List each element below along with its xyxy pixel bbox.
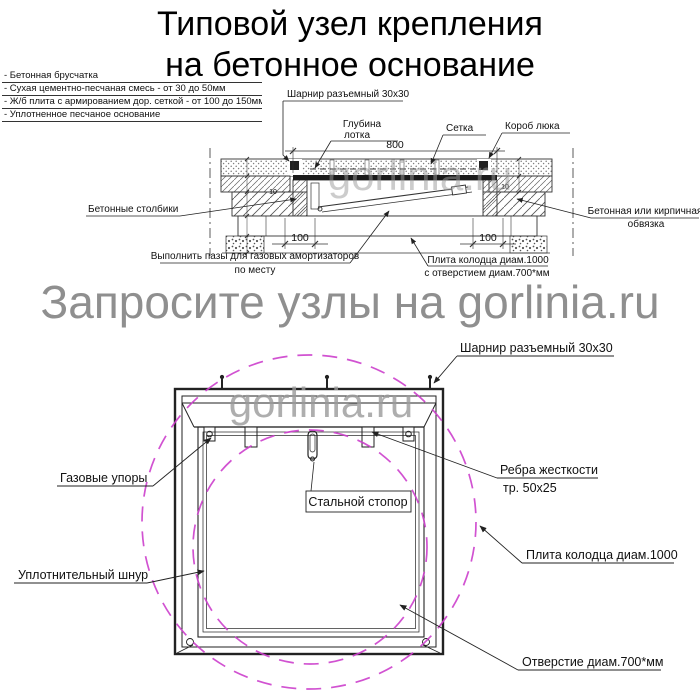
label-strapping-2: обвязка: [628, 218, 665, 230]
label-tray-depth-1: Глубина: [343, 118, 382, 130]
label-mesh: Сетка: [446, 123, 474, 134]
cement-layer-left: [221, 176, 290, 192]
label-grooves-1: Выполнить пазы для газовых амортизаторов: [151, 251, 360, 262]
label-hole: Отверстие диам.700*мм: [522, 655, 663, 669]
dim-100-right: 100: [479, 232, 497, 244]
gas-strut-bracket-right: [403, 427, 414, 441]
label-stopper: Стальной стопор: [308, 495, 407, 509]
dim-100-left: 100: [291, 232, 309, 244]
drawing-sheet: Типовой узел крепления на бетонное основ…: [0, 0, 700, 700]
dim-10-left: 10: [269, 189, 277, 196]
label-ribs-2: тр. 50x25: [503, 481, 557, 495]
plan-watermark: gorlinia.ru: [229, 379, 413, 426]
stiffener-tab: [245, 427, 257, 447]
label-posts: Бетонные столбики: [88, 203, 178, 215]
label-gas-struts: Газовые упоры: [60, 471, 147, 485]
section-watermark: gorlinia.ru: [328, 152, 512, 199]
label-hinge-plan: Шарнир разъемный 30x30: [460, 341, 613, 355]
label-slab-plan: Плита колодца диам.1000: [526, 548, 678, 562]
box-wall-left: [293, 180, 307, 216]
technical-drawing: 800 100 100 10 10 gorlinia.ru: [0, 0, 700, 700]
label-hatch-box: Короб люка: [505, 120, 560, 132]
label-tray-depth-2: лотка: [344, 130, 370, 141]
banner-watermark: Запросите узлы на gorlinia.ru: [0, 276, 700, 328]
label-grooves-2: по месту: [235, 265, 276, 276]
label-hinge-section: Шарнир разъемный 30x30: [287, 89, 410, 100]
sand-base-right: [510, 236, 547, 253]
label-ribs-1: Ребра жесткости: [500, 463, 598, 477]
hinge-block-left: [290, 161, 299, 170]
label-seal-cord: Уплотнительный шнур: [18, 568, 148, 582]
label-slab-1: Плита колодца диам.1000: [427, 255, 549, 266]
label-strapping-1: Бетонная или кирпичная: [588, 206, 700, 217]
